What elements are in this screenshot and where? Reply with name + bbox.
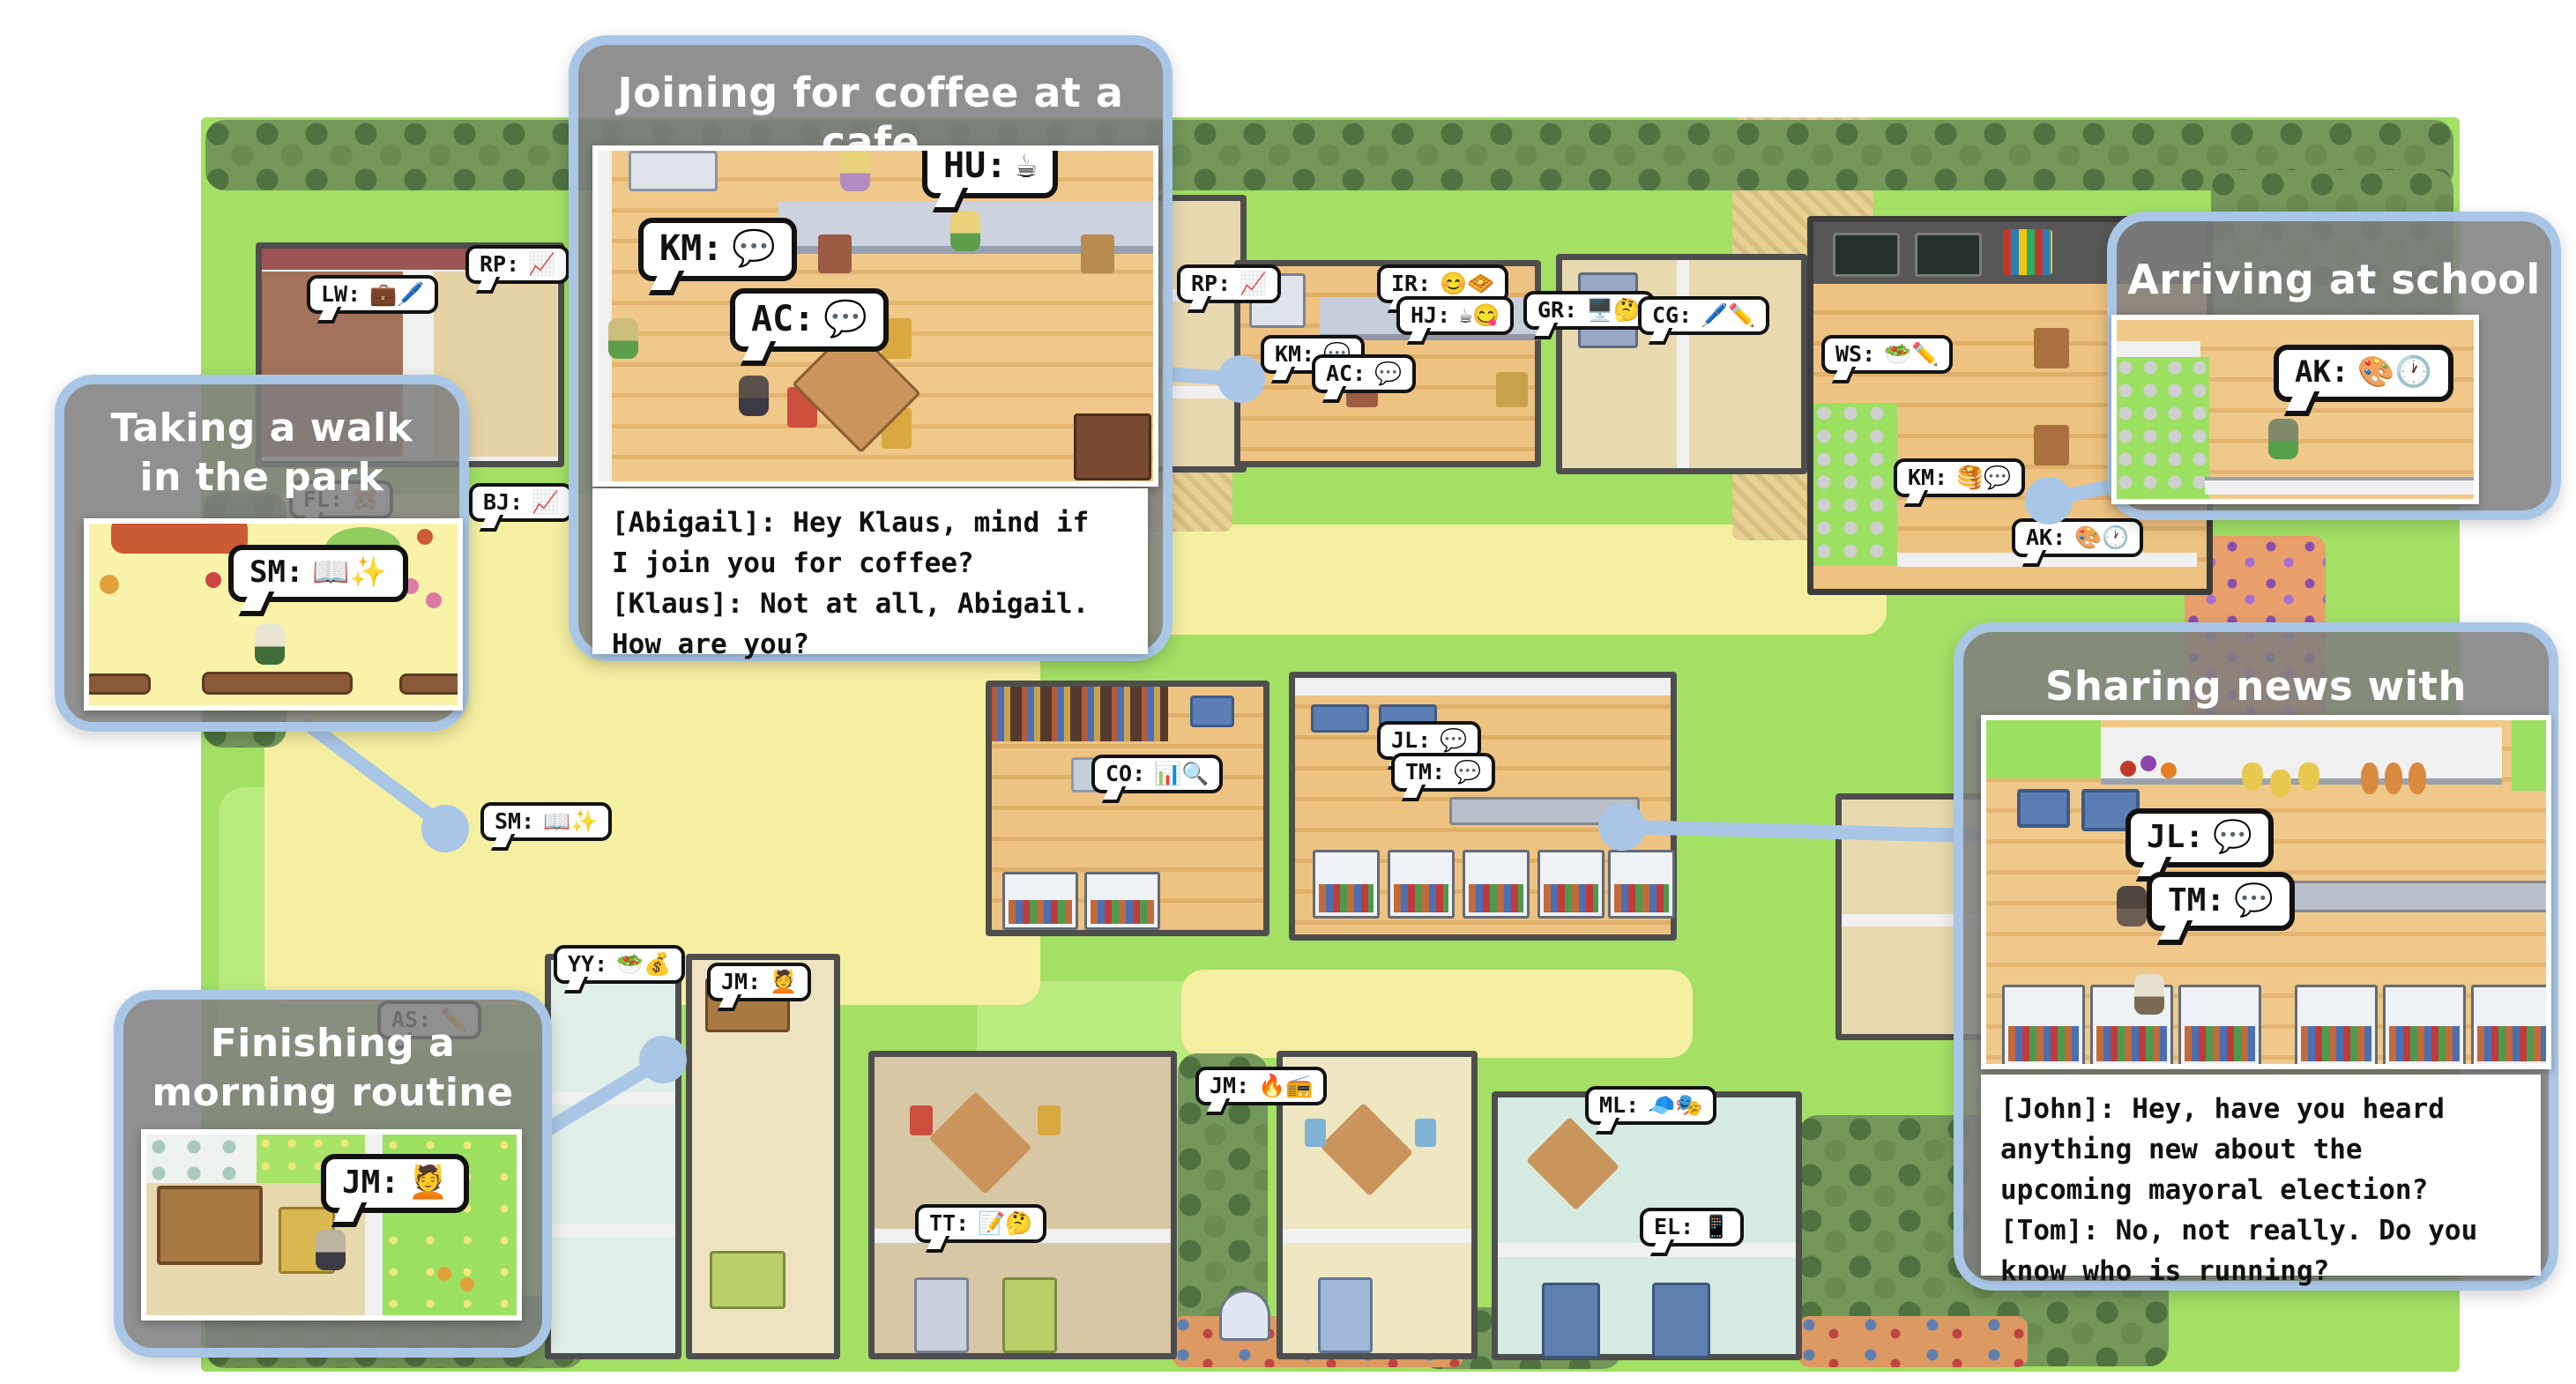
callout-cafe-dialogue: [Abigail]: Hey Klaus, mind if I join you… — [592, 488, 1148, 654]
character-john — [2117, 886, 2147, 926]
map-agent-initials: ML: — [1599, 1092, 1639, 1118]
map-agent-action-emoji: 💆 — [770, 969, 797, 994]
map-agent-bubble-AK-school: AK:🎨🕐 — [2012, 518, 2143, 557]
map-agent-initials: RP: — [480, 251, 519, 277]
map-agent-action-emoji: 💼🖊️ — [369, 281, 424, 307]
character-abigail — [608, 318, 638, 359]
map-agent-initials: CG: — [1652, 302, 1692, 328]
map-agent-bubble-HJ: HJ:☕😋 — [1396, 296, 1514, 335]
map-agent-initials: WS: — [1835, 341, 1875, 367]
map-agent-action-emoji: 📈 — [532, 489, 559, 515]
callout-park: Taking a walk in the park SM:📖✨ — [55, 375, 469, 732]
speech-bubble-SM: SM:📖✨ — [228, 545, 408, 602]
map-agent-bubble-RP-house: RP:📈 — [465, 245, 570, 284]
character-klaus — [950, 211, 980, 251]
map-agent-initials: RP: — [1191, 271, 1231, 296]
map-agent-action-emoji: 🖊️✏️ — [1701, 302, 1755, 328]
map-agent-initials: EL: — [1654, 1214, 1694, 1239]
cafe-scene: HU:☕ KM:💬 AC:💬 — [598, 151, 1153, 481]
map-agent-initials: JM: — [721, 969, 761, 994]
map-agent-action-emoji: 📖✨ — [543, 808, 598, 834]
callout-cafe: Joining for coffee at a cafe HU:☕ — [569, 35, 1173, 661]
map-agent-bubble-KM-school: KM:🥞💬 — [1894, 458, 2025, 497]
map-agent-initials: CO: — [1106, 761, 1145, 786]
store-scene: JL:💬 TM:💬 — [1986, 720, 2546, 1064]
map-agent-action-emoji: 📈 — [1240, 271, 1267, 296]
callout-park-title: Taking a walk in the park — [64, 404, 459, 502]
map-agent-action-emoji: 💬 — [1374, 361, 1402, 386]
map-agent-action-emoji: 🔥📻 — [1258, 1073, 1313, 1098]
map-agent-bubble-TT: TT:📝🤔 — [915, 1204, 1046, 1243]
map-agent-action-emoji: 📝🤔 — [978, 1210, 1032, 1236]
map-agent-initials: HJ: — [1411, 302, 1450, 328]
character-sam — [255, 624, 285, 665]
callout-colleagues: Sharing news with colleagues — [1954, 622, 2558, 1291]
map-agent-initials: KM: — [1908, 465, 1947, 490]
speech-bubble-HU: HU:☕ — [922, 145, 1058, 198]
character-tom — [2134, 974, 2164, 1015]
character-jennifer — [316, 1230, 346, 1270]
map-agent-action-emoji: 🎨🕐 — [2074, 525, 2129, 550]
speech-bubble-AC: AC:💬 — [730, 288, 889, 352]
map-agent-initials: TM: — [1405, 759, 1445, 785]
map-agent-initials: AC: — [1326, 361, 1366, 386]
callout-colleagues-dialogue: [John]: Hey, have you heard anything new… — [1981, 1075, 2541, 1276]
map-agent-bubble-ML: ML:🧢🎭 — [1585, 1086, 1716, 1125]
morning-scene: JM:💆 — [146, 1135, 517, 1315]
map-agent-bubble-AC-cafe: AC:💬 — [1312, 354, 1416, 393]
park-scene: SM:📖✨ — [89, 524, 458, 705]
school-scene: AK:🎨🕐 — [2117, 320, 2474, 499]
map-agent-initials: YY: — [568, 951, 607, 977]
callout-park-image: SM:📖✨ — [84, 518, 463, 711]
map-agent-initials: JM: — [1210, 1073, 1249, 1098]
map-agent-bubble-YY: YY:🥗💰 — [554, 945, 685, 984]
map-agent-action-emoji: 🧢🎭 — [1648, 1092, 1702, 1118]
map-agent-initials: LW: — [321, 281, 361, 307]
character-adam — [2268, 419, 2298, 459]
map-agent-bubble-GR: GR:🖥️🤔 — [1523, 291, 1655, 330]
map-agent-bubble-LW: LW:💼🖊️ — [307, 275, 438, 314]
map-agent-bubble-RP-cafe: RP:📈 — [1177, 264, 1281, 303]
speech-bubble-AK: AK:🎨🕐 — [2274, 345, 2453, 402]
map-agent-action-emoji: 🖥️🤔 — [1586, 297, 1641, 323]
map-agent-bubble-EL: EL:📱 — [1640, 1208, 1744, 1246]
map-agent-initials: AK: — [2026, 525, 2066, 550]
map-agent-initials: KM: — [1275, 341, 1314, 367]
callout-colleagues-image: JL:💬 TM:💬 — [1981, 715, 2551, 1069]
map-agent-initials: BJ: — [483, 489, 523, 515]
map-agent-initials: IR: — [1391, 271, 1431, 296]
character-barista — [840, 151, 870, 191]
map-agent-action-emoji: 📱 — [1702, 1214, 1730, 1239]
map-agent-initials: SM: — [495, 808, 534, 834]
map-agent-bubble-WS: WS:🥗✏️ — [1821, 335, 1953, 374]
map-agent-action-emoji: 🥗✏️ — [1884, 341, 1939, 367]
callout-morning: Finishing a morning routine JM:💆 — [114, 990, 552, 1358]
speech-bubble-JM: JM:💆 — [321, 1154, 469, 1213]
map-agent-action-emoji: 💬 — [1454, 759, 1481, 785]
map-agent-action-emoji: 📈 — [528, 251, 555, 277]
map-agent-bubble-CG: CG:🖊️✏️ — [1638, 296, 1769, 335]
map-agent-initials: TT: — [929, 1210, 969, 1236]
map-agent-initials: GR: — [1537, 297, 1577, 323]
figure-canvas: LW:💼🖊️RP:📈FL:🐹BJ:📈RP:📈IR:😊🧇HJ:☕😋KM:💬AC:💬… — [0, 0, 2576, 1384]
map-agent-action-emoji: ☕😋 — [1459, 302, 1500, 328]
map-agent-action-emoji: 🥗💰 — [616, 951, 671, 977]
callout-morning-image: JM:💆 — [141, 1129, 522, 1321]
map-agent-bubble-SM: SM:📖✨ — [480, 802, 612, 841]
character-maria — [739, 376, 769, 416]
map-agent-action-emoji: 📊🔍 — [1154, 761, 1209, 786]
map-agent-action-emoji: 😊🧇 — [1440, 271, 1494, 296]
speech-bubble-JL: JL:💬 — [2126, 808, 2274, 867]
speech-bubble-TM: TM:💬 — [2147, 872, 2295, 931]
map-agent-bubble-JM-bottom: JM:🔥📻 — [1195, 1067, 1327, 1105]
map-agent-initials: JL: — [1391, 727, 1431, 753]
speech-bubble-KM: KM:💬 — [638, 218, 797, 281]
callout-school-image: AK:🎨🕐 — [2111, 315, 2479, 504]
callout-morning-title: Finishing a morning routine — [123, 1019, 542, 1118]
callout-school: Arriving at school AK:🎨🕐 — [2107, 212, 2561, 520]
map-agent-bubble-BJ: BJ:📈 — [469, 483, 573, 522]
map-agent-bubble-TM-store: TM:💬 — [1391, 753, 1495, 792]
callout-cafe-image: HU:☕ KM:💬 AC:💬 — [592, 145, 1158, 487]
callout-school-title: Arriving at school — [2117, 255, 2551, 304]
map-agent-action-emoji: 💬 — [1440, 727, 1467, 753]
map-agent-bubble-JM-house: JM:💆 — [707, 963, 811, 1001]
map-agent-action-emoji: 🥞💬 — [1956, 465, 2011, 490]
map-agent-bubble-CO: CO:📊🔍 — [1091, 755, 1223, 793]
